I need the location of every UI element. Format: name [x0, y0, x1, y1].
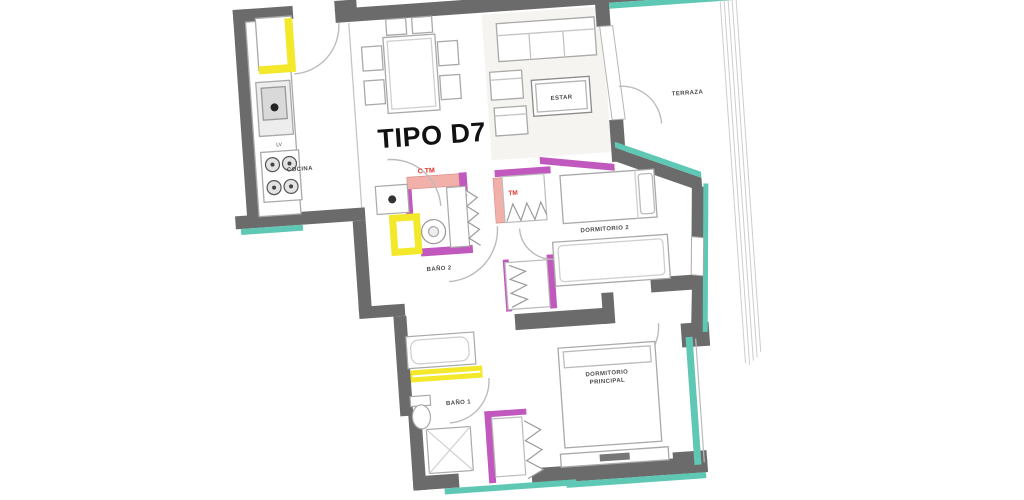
- label-cocina: COCINA: [287, 166, 314, 174]
- hall-closets: [499, 174, 553, 310]
- mullion-line: [728, 0, 753, 361]
- dp-furniture: [553, 341, 669, 467]
- dining-chair: [412, 16, 433, 33]
- floor-plan-svg: TIPO D7 COCINA LV ESTAR TERRAZA DORMITOR…: [0, 0, 1024, 500]
- door-arc-terraza: [619, 84, 662, 127]
- dining-chair: [362, 46, 384, 71]
- mullion-line: [720, 0, 746, 363]
- label-bano1: BAÑO 1: [446, 398, 472, 407]
- mullion-line: [724, 0, 750, 365]
- label-bano2: BAÑO 2: [426, 264, 452, 273]
- closet-zigzag: [524, 420, 544, 479]
- window-dorm2: [689, 236, 707, 277]
- pillow: [638, 173, 655, 214]
- dining-chair: [437, 40, 459, 65]
- wall-hall-dp: [515, 308, 611, 331]
- wall-estar-divider-top: [595, 2, 611, 27]
- closet-bottom: [492, 417, 526, 477]
- terraza-mullions: [720, 0, 762, 365]
- wall-connector: [601, 292, 615, 324]
- mullion-line: [732, 0, 757, 357]
- toilet-inner: [428, 226, 439, 237]
- armchair: [494, 106, 528, 136]
- floorplan-canvas: TIPO D7 COCINA LV ESTAR TERRAZA DORMITOR…: [0, 0, 1024, 500]
- label-terraza: TERRAZA: [672, 89, 704, 97]
- sofa: [496, 17, 596, 62]
- dining-chair: [386, 18, 407, 35]
- dining-furniture: [360, 15, 462, 115]
- kitchen-divider-line: [349, 23, 362, 208]
- label-dishwasher: LV: [276, 142, 283, 148]
- vanity-yellow: [393, 217, 419, 253]
- glazing-dp-right: [686, 337, 702, 465]
- wall-bottom-right-corner: [673, 450, 708, 474]
- kitchen-furniture: [245, 12, 362, 217]
- label-dormitorio2: DORMITORIO 2: [580, 225, 629, 234]
- bed-principal: [558, 341, 662, 448]
- wall-left-step-a: [353, 220, 372, 313]
- wardrobe-mid: [505, 260, 550, 310]
- dining-chair: [364, 80, 386, 105]
- annotation-heater: C TM: [418, 167, 436, 175]
- mullion-line: [736, 0, 761, 352]
- kitchen-cooktop: [261, 150, 302, 203]
- floor-plan: TIPO D7 COCINA LV ESTAR TERRAZA DORMITOR…: [221, 0, 773, 500]
- dining-chair: [440, 74, 462, 99]
- bano2-fixtures: [375, 180, 480, 254]
- shower-bano2: [447, 186, 470, 247]
- annotation-closet: TM: [508, 190, 518, 198]
- glazing-bottom-left: [444, 479, 576, 494]
- plan-title: TIPO D7: [377, 117, 487, 154]
- dp-closet: [492, 416, 544, 481]
- armchair: [490, 70, 524, 100]
- door-arc-kitchen: [291, 23, 342, 74]
